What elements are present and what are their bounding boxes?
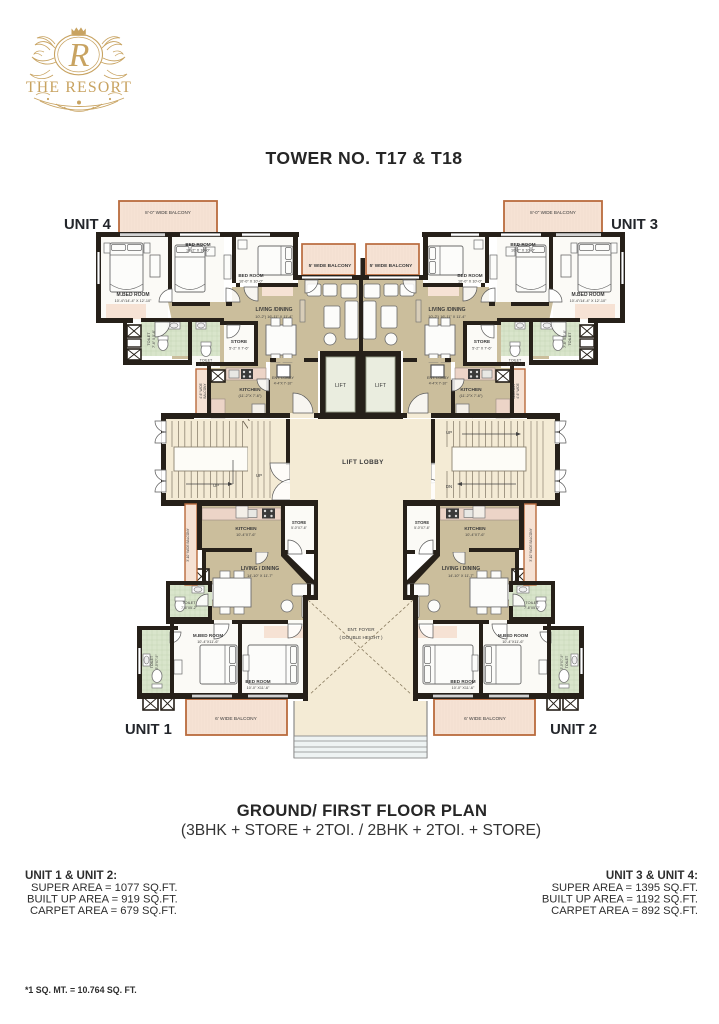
svg-text:10'-4"X7'-6": 10'-4"X7'-6" — [236, 533, 256, 537]
svg-text:BED ROOM: BED ROOM — [450, 679, 475, 684]
svg-text:14'-10" X 11'-7": 14'-10" X 11'-7" — [247, 574, 273, 578]
svg-text:TOILET: TOILET — [565, 655, 569, 668]
svg-text:10'-0" X 10'-0": 10'-0" X 10'-0" — [458, 280, 483, 284]
svg-text:4'-6" WIDE: 4'-6" WIDE — [516, 383, 520, 399]
svg-text:BED ROOM: BED ROOM — [238, 273, 263, 278]
svg-text:10'-4"/14'-4" X 12'-10": 10'-4"/14'-4" X 12'-10" — [570, 299, 607, 303]
svg-text:UNIT 2: UNIT 2 — [550, 722, 597, 738]
svg-text:5'-2" X 7'-6": 5'-2" X 7'-6" — [472, 347, 492, 351]
svg-text:ENT. LOBBY: ENT. LOBBY — [427, 376, 449, 380]
svg-text:TOILET: TOILET — [509, 359, 522, 363]
svg-text:4'-4"X 7'-10": 4'-4"X 7'-10" — [274, 382, 293, 386]
svg-text:5' WIDE BALCONY: 5' WIDE BALCONY — [370, 263, 414, 269]
svg-text:6' WIDE BALCONY: 6' WIDE BALCONY — [464, 716, 506, 722]
svg-text:UNIT 1 & UNIT 2:: UNIT 1 & UNIT 2: — [25, 869, 117, 882]
svg-text:10'-4"X7'-6": 10'-4"X7'-6" — [465, 533, 485, 537]
svg-text:M.BED ROOM: M.BED ROOM — [116, 292, 149, 298]
svg-text:M.BED ROOM: M.BED ROOM — [193, 633, 224, 638]
svg-text:KITCHEN: KITCHEN — [235, 526, 257, 532]
svg-text:( DOUBLE HEIGHT ): ( DOUBLE HEIGHT ) — [339, 635, 383, 640]
svg-text:5' WIDE BALCONY: 5' WIDE BALCONY — [309, 263, 353, 269]
svg-text:10'-2") 16'-11" X 11'-4": 10'-2") 16'-11" X 11'-4" — [255, 315, 293, 319]
svg-text:5'-4" X 7'-6": 5'-4" X 7'-6" — [507, 363, 524, 367]
svg-text:10'-0" X 10'-0": 10'-0" X 10'-0" — [239, 280, 264, 284]
svg-text:LIVING / DINING: LIVING / DINING — [241, 566, 279, 572]
svg-text:UP: UP — [446, 430, 452, 435]
svg-text:7'-6"X5'-2": 7'-6"X5'-2" — [524, 606, 541, 610]
svg-text:(3BHK + STORE + 2TOI. / 2BHK +: (3BHK + STORE + 2TOI. / 2BHK + 2TOI. + S… — [181, 822, 541, 839]
svg-text:LIVING / DINING: LIVING / DINING — [442, 566, 480, 572]
svg-text:STORE: STORE — [292, 520, 307, 525]
svg-text:BED ROOM: BED ROOM — [457, 273, 482, 278]
svg-text:M.BED ROOM: M.BED ROOM — [571, 292, 604, 298]
svg-text:10'-0" X11'-6": 10'-0" X11'-6" — [247, 686, 270, 690]
svg-text:5'-0"X7'-6": 5'-0"X7'-6" — [414, 526, 431, 530]
svg-text:THE RESORT: THE RESORT — [26, 79, 132, 96]
svg-text:KITCHEN: KITCHEN — [239, 387, 261, 393]
svg-text:10'-4"X11'-6": 10'-4"X11'-6" — [502, 640, 524, 644]
svg-text:14'-10" X 11'-7": 14'-10" X 11'-7" — [448, 574, 474, 578]
svg-text:UNIT 3: UNIT 3 — [611, 217, 658, 233]
svg-text:TOILET: TOILET — [200, 359, 213, 363]
svg-text:BUILT UP AREA = 1192 SQ.FT.: BUILT UP AREA = 1192 SQ.FT. — [542, 894, 698, 906]
svg-text:KITCHEN: KITCHEN — [464, 526, 486, 532]
svg-text:SUPER AREA = 1395 SQ.FT.: SUPER AREA = 1395 SQ.FT. — [552, 882, 698, 894]
svg-text:TOILET: TOILET — [182, 601, 196, 605]
svg-text:TOILET: TOILET — [568, 332, 572, 346]
svg-text:(11'-2"X 7'-6"): (11'-2"X 7'-6") — [238, 394, 262, 398]
svg-text:UNIT 3 & UNIT 4:: UNIT 3 & UNIT 4: — [606, 869, 698, 882]
svg-text:7'-6"X5'-2": 7'-6"X5'-2" — [181, 606, 198, 610]
svg-text:BED ROOM: BED ROOM — [185, 242, 210, 247]
svg-text:10'-4"X11'-6": 10'-4"X11'-6" — [197, 640, 219, 644]
svg-text:CARPET AREA = 679 SQ.FT.: CARPET AREA = 679 SQ.FT. — [30, 905, 177, 917]
svg-text:*1 SQ. MT. = 10.764 SQ. FT.: *1 SQ. MT. = 10.764 SQ. FT. — [25, 985, 137, 995]
svg-text:BALCONY: BALCONY — [203, 383, 207, 399]
svg-text:STORE: STORE — [415, 520, 430, 525]
svg-text:GROUND/ FIRST FLOOR PLAN: GROUND/ FIRST FLOOR PLAN — [237, 801, 488, 820]
svg-text:UP: UP — [213, 483, 219, 488]
svg-text:3'-10" WIDE BALCONY: 3'-10" WIDE BALCONY — [529, 527, 533, 561]
svg-text:LIVING /DINING: LIVING /DINING — [429, 307, 466, 313]
svg-text:BUILT UP AREA = 919 SQ.FT.: BUILT UP AREA = 919 SQ.FT. — [27, 894, 178, 906]
svg-text:UNIT 4: UNIT 4 — [64, 217, 112, 233]
svg-text:8'-0" WIDE BALCONY: 8'-0" WIDE BALCONY — [145, 210, 191, 215]
svg-text:STORE: STORE — [231, 339, 248, 345]
svg-text:R: R — [68, 37, 90, 74]
svg-text:KITCHEN: KITCHEN — [460, 387, 482, 393]
svg-text:STORE: STORE — [474, 339, 491, 345]
svg-text:(11'-2"X 7'-6"): (11'-2"X 7'-6") — [459, 394, 483, 398]
svg-text:TOILET: TOILET — [147, 332, 151, 346]
svg-text:LIVING /DINING: LIVING /DINING — [256, 307, 293, 313]
svg-text:TOILET: TOILET — [525, 601, 539, 605]
svg-text:CARPET AREA = 892 SQ.FT.: CARPET AREA = 892 SQ.FT. — [551, 905, 698, 917]
svg-text:DN: DN — [446, 484, 452, 489]
svg-text:4'-4"X 7'-10": 4'-4"X 7'-10" — [429, 382, 448, 386]
svg-text:LIFT: LIFT — [335, 383, 347, 389]
svg-text:M.BED ROOM: M.BED ROOM — [498, 633, 529, 638]
svg-text:10'-2" X 10'-0": 10'-2" X 10'-0" — [186, 249, 211, 253]
svg-text:6' WIDE BALCONY: 6' WIDE BALCONY — [215, 716, 257, 722]
svg-text:8'-0" WIDE BALCONY: 8'-0" WIDE BALCONY — [530, 210, 576, 215]
svg-text:3'-10" WIDE BALCONY: 3'-10" WIDE BALCONY — [186, 527, 190, 561]
svg-text:LIFT: LIFT — [375, 383, 387, 389]
svg-text:10'-4"/14'-4" X 12'-10": 10'-4"/14'-4" X 12'-10" — [115, 299, 152, 303]
svg-text:BED ROOM: BED ROOM — [510, 242, 535, 247]
svg-text:LIFT LOBBY: LIFT LOBBY — [342, 459, 384, 466]
svg-text:ENT. LOBBY: ENT. LOBBY — [272, 376, 294, 380]
svg-text:10'-2") 16'-11" X 11'-4": 10'-2") 16'-11" X 11'-4" — [428, 315, 466, 319]
svg-text:5'-5"X7'-9": 5'-5"X7'-9" — [560, 655, 564, 670]
svg-text:UP: UP — [256, 473, 262, 478]
svg-text:5'-2" X 7'-6": 5'-2" X 7'-6" — [229, 347, 249, 351]
svg-text:7'-6" X 5'-6": 7'-6" X 5'-6" — [563, 329, 567, 347]
svg-text:7'-6" X 5'-6": 7'-6" X 5'-6" — [152, 329, 156, 347]
svg-text:5'-5"X7'-9": 5'-5"X7'-9" — [155, 655, 159, 670]
svg-text:BED ROOM: BED ROOM — [245, 679, 270, 684]
svg-text:5'-4" X 7'-6": 5'-4" X 7'-6" — [198, 363, 215, 367]
svg-text:ENT. FOYER: ENT. FOYER — [347, 627, 375, 632]
svg-text:TOWER NO. T17 & T18: TOWER NO. T17 & T18 — [266, 148, 463, 168]
svg-text:SUPER AREA = 1077 SQ.FT.: SUPER AREA = 1077 SQ.FT. — [31, 882, 177, 894]
svg-text:10'-2" X 10'-0": 10'-2" X 10'-0" — [511, 249, 536, 253]
svg-text:10'-0" X11'-6": 10'-0" X11'-6" — [452, 686, 475, 690]
svg-text:UNIT 1: UNIT 1 — [125, 722, 172, 738]
svg-text:5'-0"X7'-6": 5'-0"X7'-6" — [291, 526, 308, 530]
svg-text:BALCONY: BALCONY — [512, 383, 516, 399]
svg-text:TOILET: TOILET — [150, 655, 154, 668]
